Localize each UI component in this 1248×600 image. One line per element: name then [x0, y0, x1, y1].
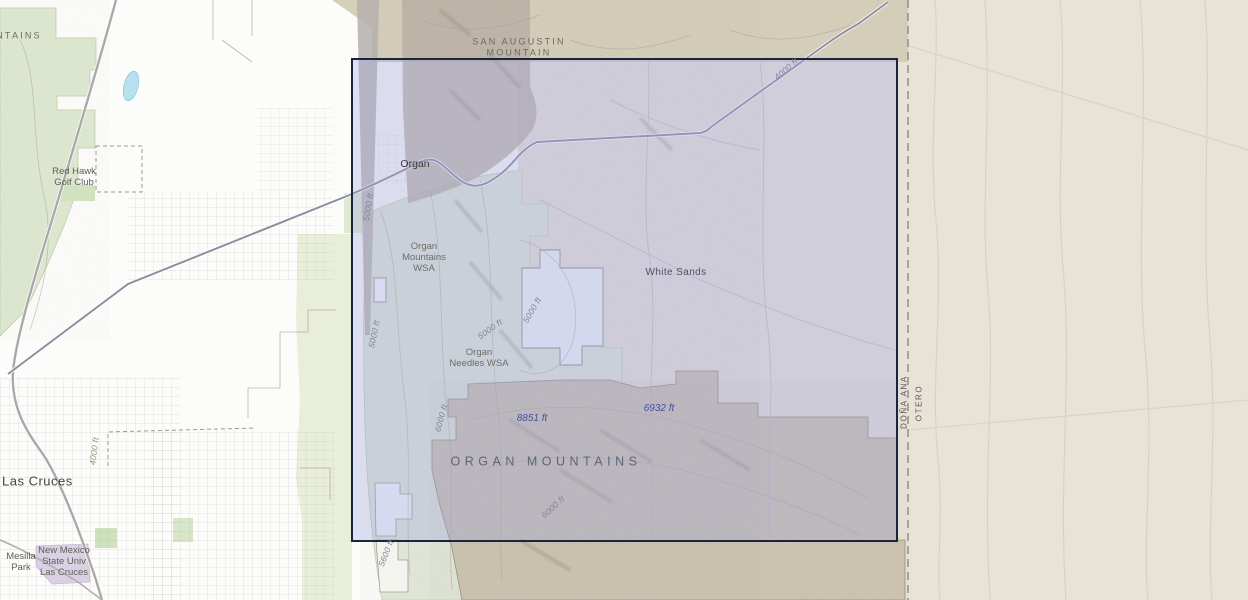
street-grid-northeast — [128, 192, 333, 280]
street-grid-southeast — [150, 430, 335, 600]
selection-rectangle[interactable] — [351, 58, 898, 542]
hillshade-west — [0, 0, 110, 340]
street-grid-east — [257, 108, 333, 193]
map-canvas[interactable]: NTAINS SAN AUGUSTIN MOUNTAIN Red Hawk Go… — [0, 0, 1248, 600]
hillshade-north — [372, 0, 908, 62]
